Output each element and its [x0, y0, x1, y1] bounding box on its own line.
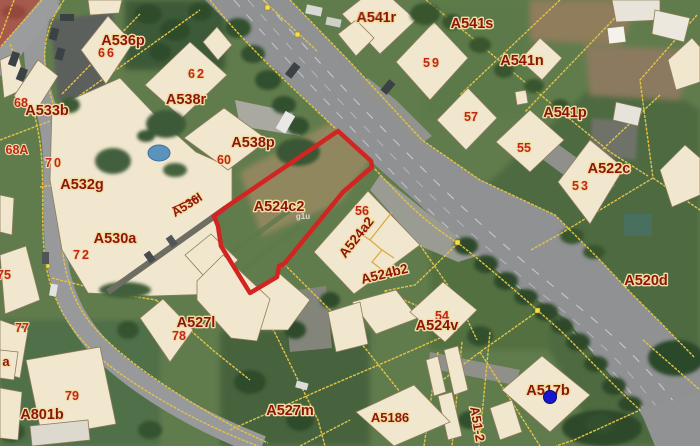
svg-text:g1u: g1u [296, 212, 310, 221]
svg-text:A533b: A533b [25, 103, 69, 119]
svg-text:68A: 68A [6, 143, 29, 157]
svg-text:77: 77 [15, 321, 29, 335]
svg-text:68: 68 [14, 96, 28, 110]
svg-text:A524v: A524v [416, 318, 459, 334]
svg-text:72: 72 [73, 248, 91, 262]
svg-text:A538p: A538p [231, 135, 275, 151]
svg-text:A54: A54 [357, 10, 384, 26]
svg-text:A532g: A532g [60, 177, 104, 193]
svg-text:66: 66 [98, 46, 116, 60]
svg-text:53: 53 [572, 179, 590, 193]
svg-text:75: 75 [0, 268, 11, 282]
svg-text:79: 79 [65, 389, 79, 403]
svg-text:A538r: A538r [166, 92, 207, 108]
svg-text:A541s: A541s [451, 16, 494, 32]
svg-text:A541p: A541p [543, 105, 587, 121]
svg-text:55: 55 [517, 141, 531, 155]
svg-text:60: 60 [217, 153, 231, 167]
svg-text:A530a: A530a [94, 231, 138, 247]
svg-text:A801b: A801b [20, 407, 64, 423]
svg-text:A541n: A541n [500, 53, 544, 69]
svg-text:A522c: A522c [588, 161, 631, 177]
svg-text:57: 57 [464, 110, 478, 124]
svg-text:A527m: A527m [266, 403, 314, 419]
svg-text:59: 59 [423, 56, 441, 70]
svg-text:62: 62 [188, 67, 206, 81]
svg-text:78: 78 [172, 329, 186, 343]
svg-text:70: 70 [45, 156, 63, 170]
svg-text:a: a [2, 354, 10, 369]
svg-text:A520d: A520d [624, 273, 668, 289]
svg-text:A5186: A5186 [371, 410, 409, 425]
